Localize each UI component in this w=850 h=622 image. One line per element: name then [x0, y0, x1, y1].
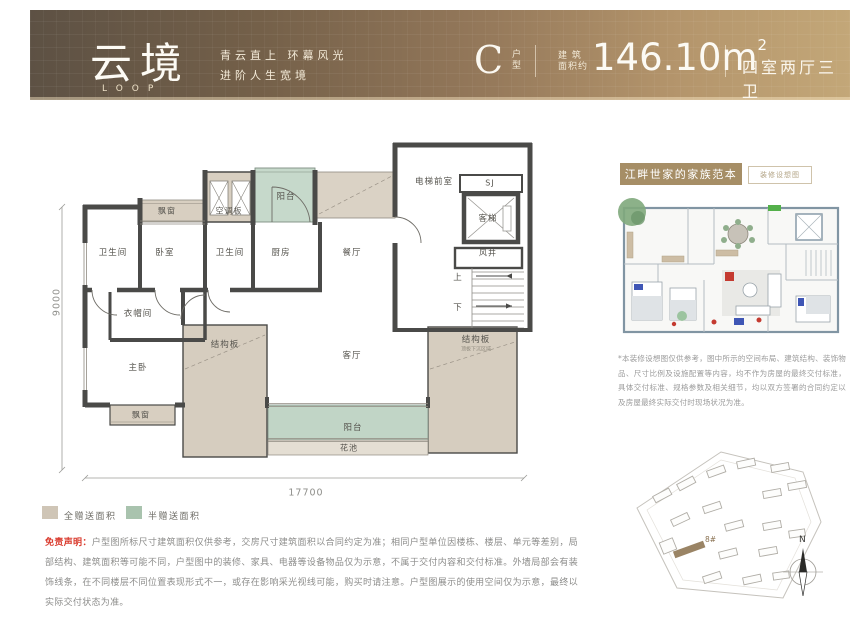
slogan-line-1: 青云直上 环幕风光 [220, 47, 348, 63]
compass-n-label: N [799, 535, 806, 545]
banner-divider-1 [535, 45, 536, 77]
legend-swatch-half-gift [126, 506, 142, 519]
disclaimer: 免责声明：户型图所标尺寸建筑面积仅供参考，交房尺寸建筑面积以合同约定为准；相同户… [45, 533, 578, 613]
banner-divider-2 [725, 45, 726, 77]
area-value: 146.10m2 [592, 36, 767, 79]
staircase [472, 268, 524, 330]
right-panel-note: *本装修设想图仅供参考，图中所示的空间布局、建筑结构、装饰物品、尺寸比例及设施配… [618, 352, 846, 410]
furnished-plan-thumbnail [618, 194, 845, 338]
legend-swatch-full-gift [42, 506, 58, 519]
disclaimer-text: 户型图所标尺寸建筑面积仅供参考，交房尺寸建筑面积以合同约定为准；相同户型单位因楼… [45, 538, 578, 608]
room-label-cloak: 衣帽间 [124, 307, 153, 319]
room-label-sj: SJ [485, 179, 494, 188]
room-label-dining: 餐厅 [342, 246, 361, 258]
room-label-slab-center: 结构板 [211, 338, 240, 350]
rooms-spec: 四室两厅三卫 [742, 54, 850, 102]
room-label-bath1: 卫生间 [99, 246, 128, 258]
room-label-slab-right-note: 顶板下沉区域 [461, 346, 491, 353]
room-label-ac-panel: 空调板 [216, 206, 243, 217]
tree-shade [631, 211, 645, 225]
header-banner: 云境 LOOP 青云直上 环幕风光 进阶人生宽境 C 户型 建 筑 面积约 14… [30, 10, 850, 100]
stairs-up-label: 上 [453, 271, 463, 283]
room-label-slab-right: 结构板 [462, 333, 491, 345]
room-label-air-shaft: 风井 [479, 248, 497, 259]
right-panel-header: 江畔世家的家族范本 [620, 163, 742, 185]
room-label-elevator-lobby: 电梯前室 [415, 175, 453, 187]
area-caption-line1: 建 筑 [558, 51, 588, 62]
room-label-elevator: 客梯 [478, 212, 497, 224]
legend-label-half-gift: 半赠送面积 [148, 509, 201, 522]
unit-type-label: 户型 [512, 50, 523, 72]
right-panel-tag: 装修设想图 [748, 166, 812, 184]
room-label-bay-top: 飘窗 [158, 206, 176, 217]
slogan-line-2: 进阶人生宽境 [220, 67, 310, 83]
legend-label-full-gift: 全赠送面积 [64, 509, 117, 522]
room-label-master: 主卧 [128, 361, 147, 373]
room-label-bath2: 卫生间 [216, 246, 245, 258]
dimension-height: 9000 [52, 288, 63, 316]
disclaimer-label: 免责声明： [45, 538, 92, 548]
project-subtitle: LOOP [102, 84, 162, 94]
area-caption-line2: 面积约 [558, 62, 588, 73]
dimension-width: 17700 [288, 488, 323, 499]
room-label-bedroom: 卧室 [155, 246, 174, 258]
room-label-living: 客厅 [342, 349, 361, 361]
unit-letter: C [474, 38, 503, 82]
mini-elevator [796, 214, 822, 240]
stairs-down-label: 下 [453, 301, 463, 313]
room-label-kitchen: 厨房 [271, 246, 290, 258]
area-caption: 建 筑 面积约 [558, 51, 588, 73]
poster: 云境 LOOP 青云直上 环幕风光 进阶人生宽境 C 户型 建 筑 面积约 14… [0, 0, 850, 622]
room-label-flower-bed: 花池 [340, 443, 358, 454]
room-label-balcony-top: 阳台 [276, 190, 295, 202]
room-label-bay-bottom: 飘窗 [132, 410, 150, 421]
room-label-balcony-bottom: 阳台 [343, 421, 362, 433]
area-number: 146.10m [592, 36, 758, 79]
site-plan: 8# N [625, 430, 835, 620]
mini-green-accent [768, 205, 781, 211]
project-title: 云境 [90, 30, 190, 91]
area-sup: 2 [758, 36, 768, 54]
building-label: 8# [705, 535, 716, 544]
